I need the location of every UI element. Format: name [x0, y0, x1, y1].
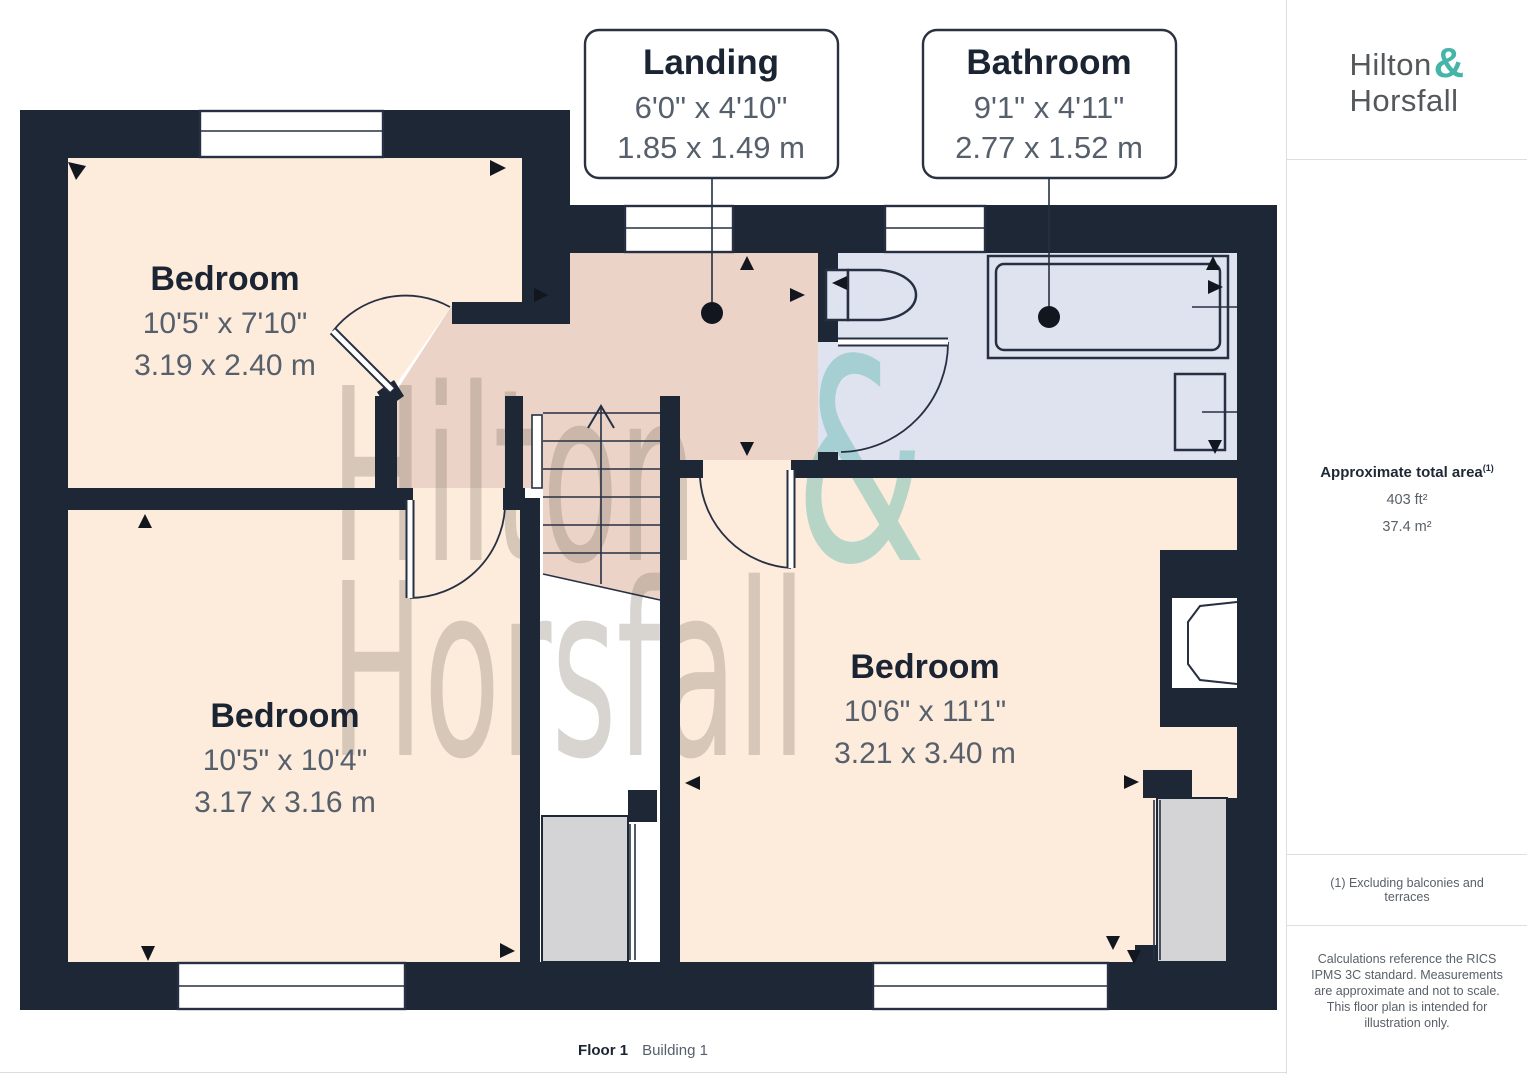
logo-name-second: Horsfall	[1349, 85, 1464, 118]
landing-callout-name: Landing	[643, 43, 779, 82]
window	[625, 206, 733, 252]
total-area-imperial: 403 ft²	[1287, 492, 1527, 508]
window	[200, 111, 383, 157]
building-label: Building 1	[642, 1042, 708, 1059]
bathroom-callout-metric: 2.77 x 1.52 m	[955, 130, 1143, 165]
room-imperial: 10'6" x 11'1"	[844, 695, 1006, 728]
room-name: Bedroom	[850, 648, 999, 686]
floor-plan: Hilton & Horsfall	[0, 0, 1286, 1080]
bathtub-inner	[996, 264, 1220, 350]
bathroom-callout: Bathroom 9'1" x 4'11" 2.77 x 1.52 m	[923, 30, 1176, 178]
disclaimer: Calculations reference the RICS IPMS 3C …	[1287, 926, 1527, 1056]
landing-leader-dot	[701, 302, 723, 324]
room-imperial: 10'5" x 7'10"	[143, 307, 308, 340]
total-area-title: Approximate total area(1)	[1287, 463, 1527, 481]
bathroom-leader-dot	[1038, 306, 1060, 328]
bedroom-topleft-label: Bedroom 10'5" x 7'10" 3.19 x 2.40 m	[134, 260, 316, 382]
footnote-ref: (1)	[1483, 463, 1494, 473]
total-area-section: Approximate total area(1) 403 ft² 37.4 m…	[1287, 160, 1527, 855]
room-name: Bedroom	[150, 260, 299, 298]
total-area-metric: 37.4 m²	[1287, 519, 1527, 535]
toilet-bowl	[848, 270, 916, 320]
landing-callout: Landing 6'0" x 4'10" 1.85 x 1.49 m	[585, 30, 838, 178]
landing-callout-metric: 1.85 x 1.49 m	[617, 130, 805, 165]
sidebar: Hilton& Horsfall Approximate total area(…	[1286, 0, 1527, 1074]
room-name: Bedroom	[210, 697, 359, 735]
stair-void-block	[542, 816, 628, 962]
room-metric: 3.21 x 3.40 m	[834, 737, 1016, 770]
floor-label: Floor 1	[578, 1042, 628, 1059]
room-metric: 3.19 x 2.40 m	[134, 349, 316, 382]
logo-name-first: Hilton	[1349, 47, 1431, 82]
window	[178, 963, 405, 1009]
watermark-line2: Horsfall	[330, 533, 806, 813]
logo-ampersand-icon: &	[1434, 39, 1465, 86]
floor-caption: Floor 1Building 1	[0, 1042, 1286, 1059]
window	[885, 206, 985, 252]
brand-logo: Hilton& Horsfall	[1287, 0, 1527, 160]
chimney-block	[1157, 798, 1227, 962]
room-metric: 3.17 x 3.16 m	[194, 786, 376, 819]
bathroom-callout-name: Bathroom	[966, 43, 1131, 82]
bedroom-bottomright-label: Bedroom 10'6" x 11'1" 3.21 x 3.40 m	[834, 648, 1016, 770]
window	[873, 963, 1108, 1009]
bathroom-callout-imperial: 9'1" x 4'11"	[974, 90, 1124, 125]
footnote: (1) Excluding balconies and terraces	[1287, 855, 1527, 926]
room-imperial: 10'5" x 10'4"	[203, 744, 368, 777]
floorplan-page: Hilton & Horsfall	[0, 0, 1527, 1080]
bedroom-bottomleft-label: Bedroom 10'5" x 10'4" 3.17 x 3.16 m	[194, 697, 376, 819]
landing-callout-imperial: 6'0" x 4'10"	[635, 90, 788, 125]
